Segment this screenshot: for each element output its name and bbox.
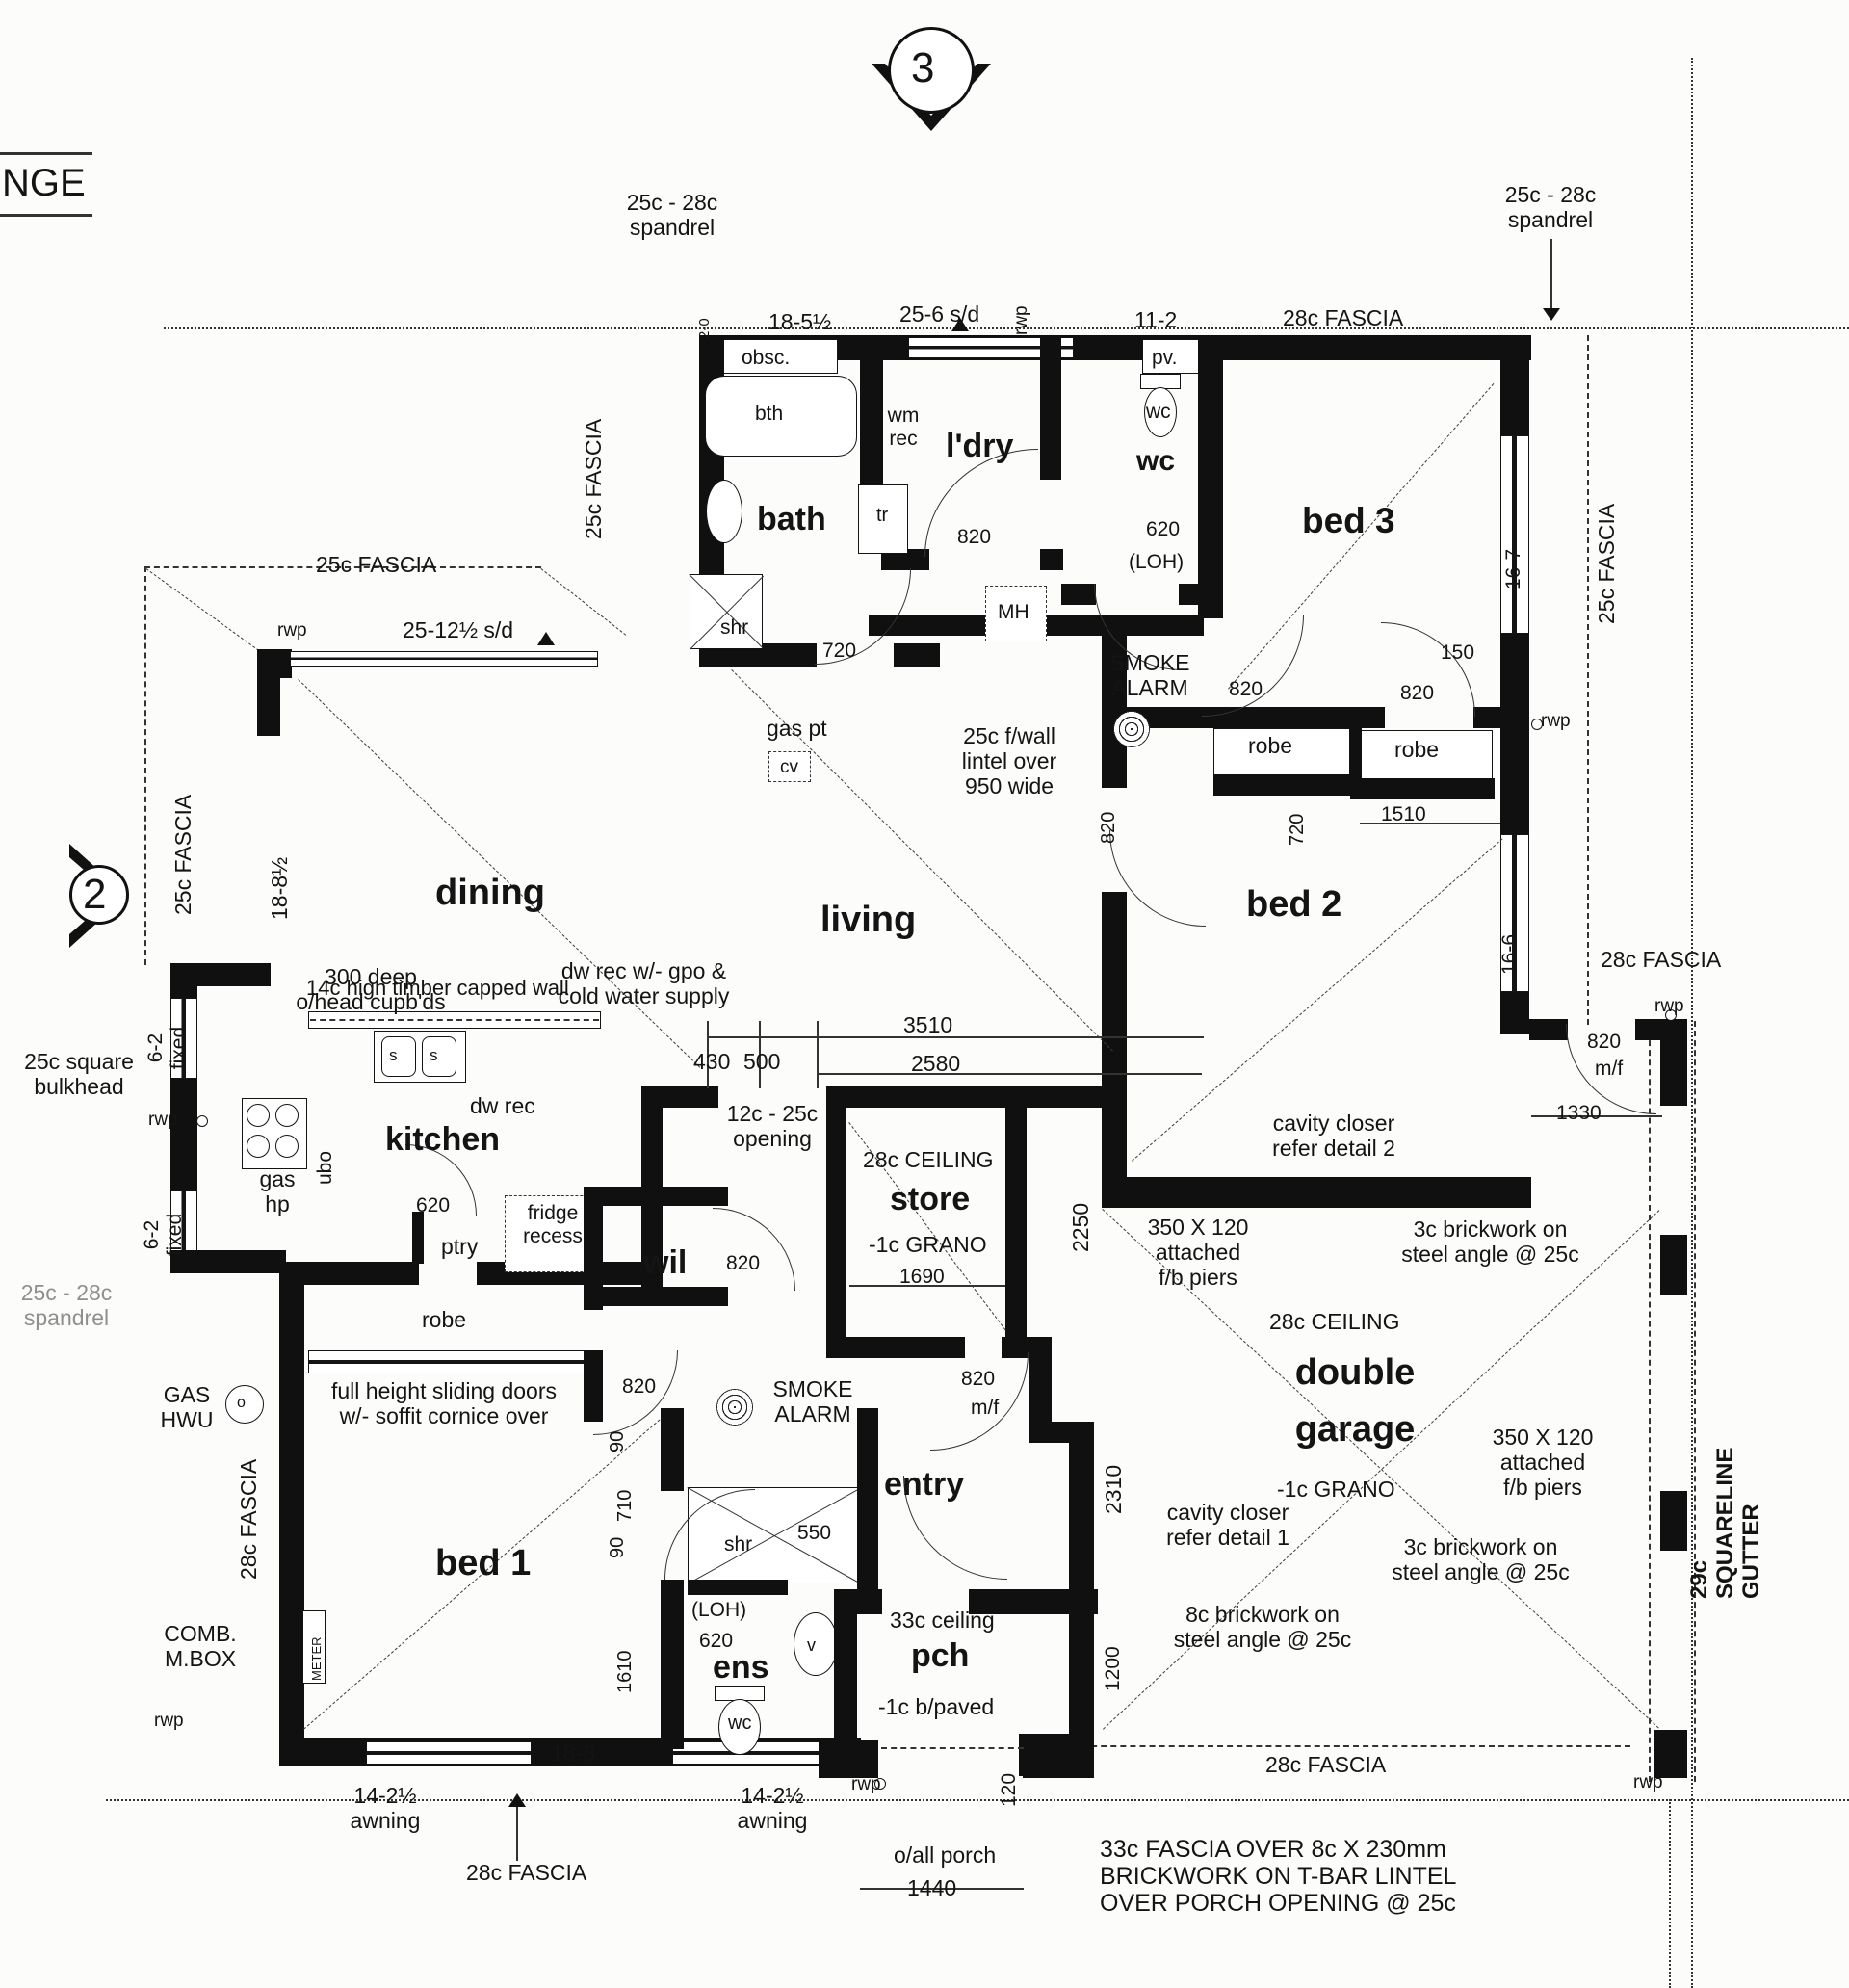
rwp-bed1: rwp (154, 1711, 184, 1731)
robe-bed1-strip (308, 1350, 586, 1373)
room-entry: entry (884, 1466, 964, 1503)
room-bed3: bed 3 (1302, 501, 1395, 540)
wall-robe-under-b (1360, 778, 1495, 799)
wall-kitchen-bottom-a (284, 1262, 419, 1285)
win-16-6-label: 16-6 (1498, 934, 1522, 975)
wall-ens-west-a (661, 1408, 684, 1491)
ptry-nib (412, 1212, 424, 1264)
room-dining: dining (435, 873, 545, 914)
dim-2-0: 2-0 (697, 318, 714, 339)
hwu-symbol-o: o (237, 1395, 246, 1412)
note-brickwork-3c-2: 3c brickwork on steel angle @ 25c (1367, 1535, 1594, 1585)
dim-11-2: 11-2 (1134, 308, 1177, 333)
nge-rule-bottom (0, 214, 92, 217)
fixture-vanity-v: v (807, 1635, 816, 1655)
room-wil: wil (643, 1244, 687, 1281)
floor-plan-page: { "drawing": { "type": "residential floo… (0, 0, 1849, 1988)
note-ceiling-28-garage: 28c CEILING (1269, 1310, 1400, 1335)
garage-pier-1 (1660, 1235, 1687, 1295)
plan-canvas: 3NGE25c - 28c spandrel2-018-5½obsc.25-6 … (0, 0, 1849, 1988)
marker-2-label: 2 (83, 871, 106, 918)
dimline-2580 (817, 1073, 1202, 1075)
dim-1690: 1690 (899, 1266, 945, 1289)
note-ceiling-28-store: 28c CEILING (863, 1148, 994, 1173)
note-mf-garage: m/f (1595, 1058, 1623, 1081)
dim-3510: 3510 (903, 1013, 952, 1038)
roof-diag-b (540, 568, 626, 636)
dim-820-wil: 820 (726, 1252, 760, 1275)
garage-overhang-b (1694, 1021, 1696, 1782)
boundary-porch (1669, 1799, 1671, 1988)
fixture-sink-s2: s (430, 1046, 438, 1064)
note-piers-1: 350 X 120 attached f/b piers (1131, 1216, 1265, 1290)
note-piers-2: 350 X 120 attached f/b piers (1475, 1426, 1610, 1500)
dim-430: 430 (693, 1050, 730, 1075)
dim-18-5-half: 18-5½ (768, 310, 831, 335)
room-living: living (820, 900, 916, 941)
dim-1440: 1440 (907, 1876, 956, 1901)
note-sliding-doors: full height sliding doors w/- soffit cor… (316, 1379, 572, 1429)
dim-1610: 1610 (614, 1651, 636, 1694)
dim-oall-porch: o/all porch (894, 1844, 996, 1869)
dim-710: 710 (614, 1490, 636, 1522)
dim-820-garage-door: 820 (1587, 1031, 1621, 1054)
fixture-mh: MH (998, 601, 1029, 624)
garage-overhang-a (1649, 1021, 1651, 1782)
capped-wall-dash (310, 1019, 599, 1021)
dimline-3510 (708, 1036, 1204, 1038)
wall-kitchen-bottom-step (170, 1250, 286, 1273)
wall-entry-garage-a (1029, 1337, 1052, 1424)
arrow-spandrel-line (1550, 239, 1552, 310)
note-loh-ens: (LOH) (691, 1599, 746, 1622)
fixture-robe-bed1: robe (422, 1308, 466, 1333)
note-loh-wc: (LOH) (1129, 551, 1184, 574)
note-ceiling-33: 33c ceiling (890, 1609, 995, 1634)
dim-25-12-half-sd: 25-12½ s/d (403, 618, 513, 643)
burner-2 (275, 1104, 299, 1127)
fascia-line-right (1587, 335, 1589, 1025)
sink-bowl-1 (381, 1036, 416, 1077)
note-bpaved: -1c b/paved (878, 1695, 994, 1720)
dim-820-store-door: 820 (961, 1368, 995, 1391)
marker-3-label: 3 (911, 44, 934, 92)
wall-ldry-wc (1040, 335, 1061, 480)
fixture-robe-bed2b: robe (1394, 738, 1439, 763)
note-comb-mbox: COMB. M.BOX (150, 1622, 250, 1672)
smoke-alarm-2: SMOKE ALARM (757, 1377, 869, 1427)
roof-dash-left (144, 566, 146, 965)
room-kitchen: kitchen (385, 1121, 500, 1158)
fascia-25-bath: 25c FASCIA (582, 419, 607, 539)
rwp-bottom-right: rwp (1633, 1772, 1663, 1792)
dim-120: 120 (998, 1773, 1021, 1807)
note-12c-25c-opening: 12c - 25c opening (705, 1102, 840, 1152)
rwp-right-mid: rwp (1541, 711, 1571, 731)
dim-820-bed3: 820 (1400, 682, 1434, 705)
garage-pier-3 (1654, 1730, 1687, 1778)
note-cv: cv (780, 757, 798, 777)
dim-620-kitchen: 620 (416, 1194, 450, 1217)
wall-ldry-bottom-b (1040, 549, 1063, 570)
note-mf-store: m/f (971, 1397, 999, 1420)
spandrel-top-right: 25c - 28c spandrel (1488, 183, 1613, 233)
note-33c-fascia: 33c FASCIA OVER 8c X 230mm BRICKWORK ON … (1100, 1836, 1456, 1917)
win-16-7-label: 16-7 (1502, 549, 1525, 589)
note-gas-hwu: GAS HWU (156, 1383, 218, 1433)
fixture-wm-rec: wm rec (878, 405, 928, 450)
wall-entry-west (857, 1408, 878, 1601)
dim-90-a: 90 (607, 1431, 628, 1452)
note-squareline-gutter: 29c SQUARELINE GUTTER (1687, 1437, 1765, 1599)
fascia-28-right: 28c FASCIA (1601, 948, 1721, 973)
rwp-dining: rwp (277, 620, 307, 641)
arrow-fascia-line (516, 1807, 518, 1861)
fixture-wc-pan: wc (1146, 401, 1171, 424)
dim-1510: 1510 (1381, 803, 1426, 826)
dim-1330: 1330 (1556, 1102, 1602, 1125)
door-arc-wil (713, 1208, 795, 1291)
dimtick-2580 (817, 1021, 819, 1088)
arrow-spandrel-head (1543, 308, 1560, 321)
dim-550: 550 (797, 1522, 831, 1545)
dim-820-hall: 820 (1229, 678, 1263, 701)
rwp-porch: rwp (851, 1774, 881, 1794)
wall-robe-under-a (1213, 774, 1350, 796)
fixture-gas-hp: gas hp (248, 1167, 306, 1217)
porch-pier-right (1023, 1739, 1094, 1778)
dim-2580: 2580 (911, 1052, 960, 1077)
smoke-alarm-icon-2 (716, 1389, 753, 1426)
room-bath: bath (757, 501, 826, 537)
note-dw-rec: dw rec (470, 1094, 535, 1119)
dim-18-8: 18-8 (551, 1741, 595, 1766)
fixture-sink-s1: s (389, 1046, 398, 1064)
fixture-robe-bed2a: robe (1248, 734, 1292, 759)
note-grano-store: -1c GRANO (869, 1233, 987, 1258)
window-obsc-label: obsc. (742, 347, 790, 370)
note-gas-pt: gas pt (767, 717, 827, 742)
dim-2310: 2310 (1102, 1465, 1127, 1514)
wall-wc-bottom-a (1061, 584, 1096, 605)
dim-2250: 2250 (1069, 1203, 1094, 1252)
note-capped-wall: 14c high timber capped wall (306, 977, 569, 1001)
dim-820-bed2: 820 (1098, 812, 1119, 844)
fixture-wc-ens: wc (728, 1713, 751, 1734)
dim-820-ldry: 820 (957, 526, 991, 549)
fascia-28-left: 28c FASCIA (237, 1459, 262, 1580)
rwp-top: rwp (1011, 305, 1031, 335)
rwp-kitchen: rwp (148, 1110, 178, 1130)
fascia-25-right: 25c FASCIA (1595, 504, 1620, 624)
wall-robe-top-b (1473, 707, 1502, 728)
room-ens: ens (713, 1649, 769, 1686)
dim-25-6-sd: 25-6 s/d (899, 302, 979, 327)
fascia-28-bottom: 28c FASCIA (1265, 1753, 1386, 1778)
window-bed1-awning (366, 1741, 532, 1765)
note-cavity-closer-2: cavity closer refer detail 2 (1242, 1112, 1425, 1162)
boundary-right (1691, 58, 1693, 1988)
fixture-bth: bth (755, 403, 783, 426)
rwp-circle-kitchen (196, 1115, 208, 1127)
wall-bed1-left (279, 1271, 304, 1743)
dim-720-bed2: 720 (1287, 814, 1308, 846)
sd-marker-dining (537, 632, 555, 645)
room-ldry: l'dry (946, 428, 1013, 464)
fixture-fridge-recess: fridge recess (508, 1202, 597, 1247)
wall-robe-top-a (1125, 707, 1385, 728)
fascia-28-bottom-left: 28c FASCIA (466, 1861, 586, 1886)
dim-1200: 1200 (1102, 1646, 1125, 1691)
note-meter: METER (310, 1637, 325, 1682)
porch-pier-left (819, 1739, 878, 1778)
dim-90-b: 90 (607, 1537, 628, 1558)
wall-bed3-left (1198, 335, 1223, 618)
dim-18-8-half: 18-8½ (268, 857, 293, 920)
fixture-tr: tr (876, 505, 888, 526)
dim-620-wc: 620 (1146, 518, 1180, 541)
wall-entry-garage-b (1029, 1422, 1094, 1443)
note-grano-garage: -1c GRANO (1277, 1478, 1395, 1503)
window-16-7 (1500, 435, 1529, 634)
dim-500: 500 (743, 1050, 780, 1075)
wall-ens-west-b (661, 1580, 684, 1749)
wall-bath-bottom-b (894, 643, 940, 667)
wall-wil-bottom (584, 1287, 728, 1306)
fixture-ptry: ptry (441, 1235, 478, 1260)
arrow-fascia-head (508, 1793, 526, 1807)
room-bed2: bed 2 (1246, 884, 1341, 926)
wall-garage-right-top (1660, 1019, 1687, 1106)
wall-dining-corner-b (257, 672, 280, 736)
fascia-25-roof: 25c FASCIA (316, 553, 436, 578)
nge-rule-top (0, 152, 92, 155)
dim-820-bed1: 820 (622, 1375, 656, 1399)
fascia-25-left: 25c FASCIA (171, 795, 196, 915)
porch-opening (881, 1747, 1024, 1749)
smoke-alarm-1: SMOKE ALARM (1094, 651, 1206, 701)
bath-basin (706, 480, 742, 543)
fixture-ubo: ubo (314, 1151, 337, 1185)
garage-pier-2 (1660, 1491, 1687, 1551)
door-arc-hall (1202, 615, 1304, 717)
wall-store-right (1005, 1096, 1027, 1341)
corner-note-nge: NGE (2, 162, 86, 205)
note-fwall-lintel: 25c f/wall lintel over 950 wide (932, 724, 1086, 798)
smoke-alarm-icon-1 (1113, 711, 1150, 747)
wall-ens-shower-under (688, 1580, 788, 1595)
burner-3 (247, 1135, 270, 1158)
wall-garage-top-a (1529, 1019, 1568, 1040)
dim-awning-1: 14-2½ awning (327, 1784, 443, 1834)
rwp-garage: rwp (1654, 996, 1684, 1016)
dim-150: 150 (1441, 641, 1474, 665)
note-brickwork-8c: 8c brickwork on steel angle @ 25c (1152, 1603, 1373, 1653)
window-pv-label: pv. (1152, 347, 1177, 370)
room-pch: pch (911, 1637, 969, 1674)
wall-entry-garage-c (1069, 1443, 1094, 1743)
note-bulkhead: 25c square bulkhead (2, 1050, 156, 1100)
room-store: store (890, 1181, 970, 1217)
fixture-shr-bath: shr (720, 616, 748, 640)
sink-bowl-2 (422, 1036, 456, 1077)
wall-porch-left (834, 1589, 857, 1743)
roof-diag-a (145, 568, 263, 654)
fixture-shr-ens: shr (724, 1533, 752, 1556)
note-brickwork-3c-1: 3c brickwork on steel angle @ 25c (1377, 1217, 1603, 1268)
win-6-2-lower-label: 6-2 fixed (141, 1206, 186, 1264)
wall-store-top-b (826, 1086, 1127, 1108)
note-cavity-closer-1: cavity closer refer detail 1 (1136, 1501, 1319, 1551)
spandrel-left-lower: 25c - 28c spandrel (4, 1281, 129, 1331)
wall-wc-bottom-b (1179, 584, 1200, 605)
room-bed1: bed 1 (435, 1543, 531, 1584)
garage-door-opening (1072, 1745, 1630, 1747)
fascia-28-top: 28c FASCIA (1283, 306, 1403, 331)
spandrel-top-left: 25c - 28c spandrel (605, 191, 740, 241)
dim-awning-2: 14-2½ awning (715, 1784, 830, 1834)
room-double-garage: double garage (1273, 1345, 1437, 1458)
burner-1 (247, 1104, 270, 1127)
ens-vanity (794, 1612, 838, 1676)
window-dining-sd (290, 651, 598, 667)
room-wc: wc (1136, 445, 1175, 478)
dim-720-bath: 720 (822, 640, 856, 663)
boundary-top (164, 327, 1849, 329)
wall-bed2-bottom (1102, 1177, 1531, 1208)
burner-4 (275, 1135, 299, 1158)
